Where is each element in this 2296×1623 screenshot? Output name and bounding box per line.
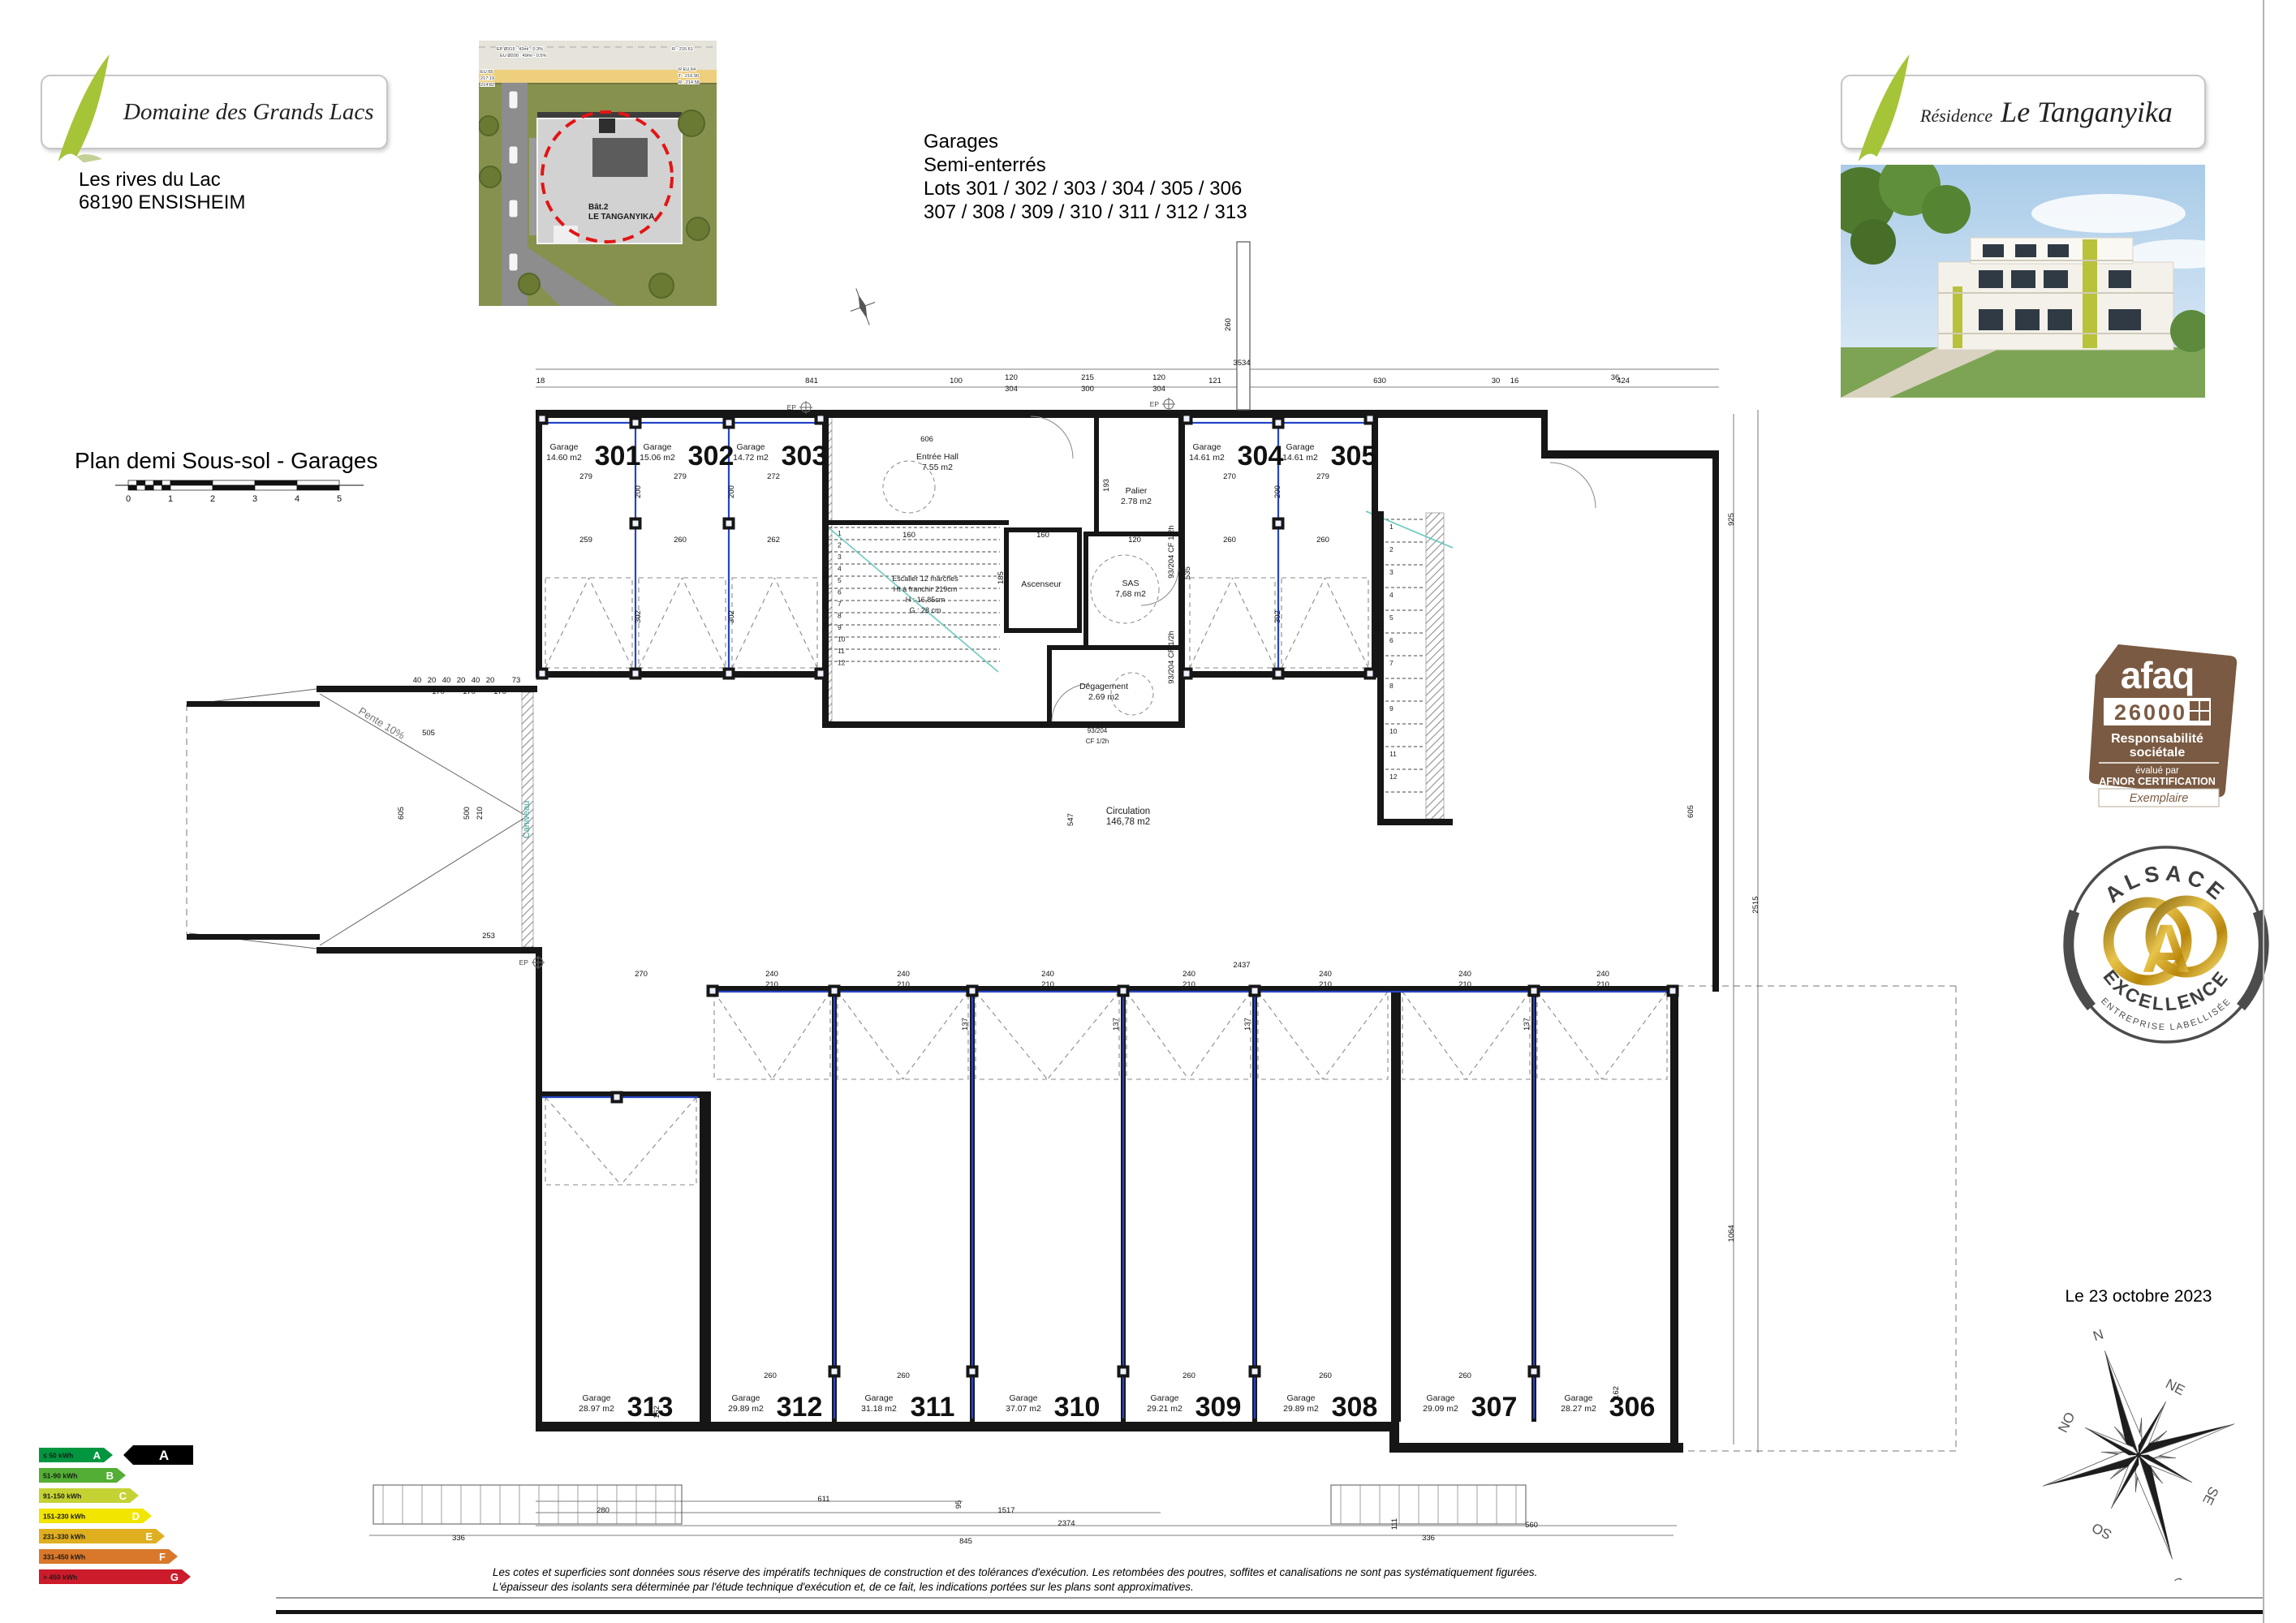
dimension-text: 841: [805, 377, 818, 385]
afaq-number: 26000: [2114, 700, 2187, 725]
dimension-text: 93/204 CF 1/2h: [1167, 631, 1176, 684]
vent-duct: [1237, 242, 1250, 410]
afaq-eval-1: évalué par: [2135, 766, 2179, 776]
dimension-text: 20: [457, 676, 466, 685]
rect: [545, 578, 632, 668]
stair-number: 2: [838, 541, 842, 549]
ep-label: EP: [1150, 400, 1160, 408]
plan-sheet: Domaine des Grands Lacs Les rives du Lac…: [0, 0, 2296, 1623]
dimension-text: 259: [579, 536, 592, 545]
afaq-tagline-2: sociétale: [2130, 746, 2186, 760]
dimension-text: 111: [1390, 1518, 1399, 1530]
site-note: R : 215.61: [672, 47, 693, 52]
dimension-text: 40: [413, 676, 422, 685]
dimension-text: 2374: [1058, 1519, 1075, 1528]
line: [545, 1097, 621, 1185]
line: [1537, 992, 1602, 1079]
garage-number: 312: [777, 1392, 823, 1423]
compass-direction-label: NO: [2055, 1410, 2078, 1435]
garage-number: 301: [595, 441, 641, 471]
plan-annotation: Caniveau: [522, 801, 532, 838]
dimension-text: 279: [674, 472, 687, 481]
site-note: R : 214.58: [678, 80, 700, 85]
scale-cell: [128, 480, 136, 485]
dimension-text: 272: [767, 472, 780, 481]
developer-logo-text: Domaine des Grands Lacs: [123, 99, 374, 126]
garage-number: 309: [1195, 1392, 1242, 1423]
stair-number: 9: [838, 623, 842, 631]
title-line-2: Semi-enterrés: [924, 153, 1247, 177]
dimension-text: 302: [727, 610, 736, 623]
stair-number: 3: [838, 553, 842, 561]
dimension-text: 845: [959, 1537, 972, 1546]
scale-cell: [153, 485, 162, 490]
plan-ramp-line: [320, 818, 524, 945]
dimension-text: 240: [1458, 970, 1471, 979]
room-label: Entrée Hall: [916, 452, 958, 462]
residence-logo-text: Résidence Le Tanganyika: [1920, 95, 2173, 129]
photo-cloud: [2031, 194, 2186, 233]
dimension-text: 137: [1243, 1018, 1252, 1031]
dimension-text: 240: [897, 970, 910, 979]
garage-name: Garage: [582, 1393, 610, 1403]
room-label: Ht à franchir 219cm: [894, 585, 958, 593]
site-tree: [678, 110, 704, 136]
plan-column-core: [633, 420, 639, 426]
stair-number: 7: [838, 600, 842, 608]
stair-number: 8: [1389, 682, 1394, 690]
line: [1323, 992, 1388, 1079]
dimension-text: 253: [482, 932, 495, 941]
rect: [838, 992, 968, 1079]
energy-range-label: > 450 kWh: [43, 1573, 77, 1582]
dimension-text: 335: [1373, 620, 1382, 633]
dimension-text: 137: [1523, 1018, 1531, 1031]
dimension-text: 1517: [997, 1506, 1014, 1515]
garage-area: 15.06 m2: [640, 453, 675, 463]
ep-label: EP: [519, 958, 529, 966]
stair-number: 12: [838, 659, 846, 667]
dimension-text: 240: [1041, 970, 1054, 979]
plan-column-core: [633, 521, 639, 527]
rect: [373, 1485, 682, 1524]
line: [621, 1097, 696, 1185]
dimension-text: 630: [1373, 377, 1386, 385]
dimension-text: 1064: [1727, 1225, 1736, 1242]
rect: [1190, 578, 1275, 668]
garage-name: Garage: [1150, 1393, 1178, 1403]
line: [714, 992, 773, 1079]
rect: [732, 578, 817, 668]
stair-number: 12: [1389, 773, 1398, 781]
compass-rose: NNEESESSOONO: [2033, 1321, 2244, 1581]
rect: [1402, 992, 1530, 1079]
plan-column-core: [1368, 416, 1373, 422]
rect: [545, 1097, 696, 1185]
scale-tick-label: 0: [126, 494, 131, 504]
dimension-text: 185: [997, 571, 1006, 584]
garage-door-swing: [545, 1097, 696, 1185]
stair-number: 2: [1389, 545, 1394, 553]
scale-cell: [145, 485, 153, 490]
dimension-text: 533: [821, 566, 830, 579]
stair-number: 6: [1389, 636, 1394, 644]
dimension-text: 137: [961, 1018, 970, 1031]
afaq-brand: afaq: [2121, 654, 2195, 696]
line: [1602, 992, 1667, 1079]
dimension-text: 160: [902, 531, 915, 540]
north-arrow-icon: [844, 284, 881, 329]
garage-name: Garage: [731, 1393, 760, 1403]
stair-number: 10: [1389, 727, 1398, 735]
scale-cell: [136, 485, 144, 490]
dimension-text: 304: [1152, 385, 1165, 394]
plan-wall: [1004, 628, 1082, 633]
dimension-text: 93/204 CF 1/2h: [1167, 525, 1176, 579]
room-label: Ascenseur: [1021, 579, 1062, 589]
dimension-text: 547: [1066, 813, 1075, 826]
garage-number: 303: [782, 441, 828, 471]
garage-area: 14.61 m2: [1282, 453, 1318, 463]
site-note: EP Ø315 : 43ml - 0.3%: [497, 47, 543, 52]
plan-column-core: [970, 988, 976, 994]
dimension-text: 40: [472, 676, 480, 685]
plan-column-core: [832, 988, 838, 994]
plan-column-core: [710, 988, 716, 994]
dimension-text: 336: [1422, 1534, 1435, 1543]
stair-number: 3: [1389, 568, 1394, 576]
garage-area: 14.60 m2: [546, 453, 582, 463]
disclaimer-line-2: L'épaisseur des isolants sera déterminée…: [493, 1580, 1759, 1595]
alsace-monogram: A: [2142, 911, 2191, 987]
sheet-right-border: [2263, 0, 2264, 1623]
address-line-1: Les rives du Lac: [79, 169, 245, 192]
stair-number: 6: [838, 588, 842, 596]
dimension-text: 260: [764, 1371, 777, 1380]
afaq-grade: Exemplaire: [2130, 792, 2189, 805]
rect: [1126, 992, 1251, 1079]
plan-column-core: [726, 420, 732, 426]
light-well: [1331, 1485, 1526, 1524]
garage-number: 310: [1054, 1392, 1101, 1423]
plan-column-core: [1276, 671, 1282, 677]
dimension-text: 40: [442, 676, 451, 685]
plan-wall: [822, 520, 1009, 525]
dimension-text: 606: [920, 435, 933, 444]
line: [775, 578, 818, 668]
dimension-text: 560: [1525, 1521, 1538, 1530]
energy-letter: A: [93, 1449, 101, 1462]
dimension-text: 2515: [1751, 896, 1760, 913]
dimension-text: 279: [579, 472, 592, 481]
rainwater-marker: EP: [1150, 398, 1175, 411]
dimension-text: 16: [1510, 377, 1519, 385]
dimension-text: 240: [1596, 970, 1609, 979]
dimension-text: 120: [1152, 373, 1165, 382]
dimension-text: 925: [1727, 513, 1736, 526]
afaq-tagline-1: Responsabilité: [2111, 732, 2203, 746]
room-label: Palier: [1126, 486, 1148, 496]
garage-area: 28.97 m2: [579, 1404, 614, 1414]
developer-logo: Domaine des Grands Lacs: [41, 75, 388, 149]
plan-column-core: [614, 1095, 620, 1100]
dimension-text: 605: [1686, 805, 1695, 818]
dimension-text: 240: [1182, 970, 1195, 979]
plan-column-core: [540, 671, 545, 677]
plan-wall: [536, 1091, 542, 1428]
energy-range-label: ≤ 50 kWh: [43, 1452, 73, 1460]
dimension-text: 200: [634, 485, 643, 498]
room-label: 7.55 m2: [922, 463, 953, 472]
plan-column-core: [1531, 988, 1537, 994]
dimension-text: 260: [897, 1371, 910, 1380]
rect: [639, 578, 726, 668]
plan-column-core: [832, 1369, 838, 1375]
dimension-text: 270: [1223, 472, 1236, 481]
scale-cell: [136, 480, 144, 485]
room-label: 2.69 m2: [1088, 692, 1119, 702]
line: [838, 992, 903, 1079]
afaq-certification-badge: afaq 26000 Responsabilité sociétale éval…: [2071, 639, 2243, 811]
plan-wall: [317, 947, 537, 954]
garage-number: 305: [1331, 441, 1377, 471]
dimension-text: 30: [1492, 377, 1501, 385]
plan-column-core: [818, 416, 824, 422]
garage-door-swing: [838, 992, 968, 1079]
residence-name: Le Tanganyika: [2001, 95, 2173, 129]
plan-column-core: [1252, 988, 1258, 994]
plan-column-core: [1276, 420, 1282, 426]
dimension-text: 611: [817, 1495, 829, 1504]
energy-range-label: 51-90 kWh: [43, 1472, 78, 1480]
garage-area: 29.89 m2: [728, 1404, 764, 1414]
footer-divider: [276, 1597, 2264, 1599]
dimension-text: 215: [1081, 373, 1094, 382]
dimension-text: 304: [1005, 385, 1018, 394]
dimension-text: 170: [463, 687, 476, 696]
energy-letter: F: [159, 1551, 166, 1563]
dimension-text: 160: [1036, 531, 1049, 540]
garage-number: 304: [1238, 441, 1284, 471]
garage-name: Garage: [736, 442, 765, 452]
dimension-text: 260: [1319, 1371, 1332, 1380]
garage-door-swing: [1190, 578, 1275, 668]
garage-door-swing: [1537, 992, 1667, 1079]
room-label: Escalier 12 marches: [892, 575, 958, 583]
plan-wall: [1391, 992, 1401, 1422]
garage-area: 14.61 m2: [1189, 453, 1225, 463]
afaq-eval-2: AFNOR CERTIFICATION: [2099, 776, 2216, 787]
dimension-text: 240: [765, 970, 778, 979]
dimension-text: 240: [1319, 970, 1332, 979]
garage-name: Garage: [1564, 1393, 1592, 1403]
garage-door-swing: [545, 578, 632, 668]
site-tree: [480, 166, 501, 187]
line: [1126, 992, 1189, 1079]
line: [1402, 992, 1467, 1079]
stair-number: 4: [1389, 591, 1394, 599]
room-label: 146,78 m2: [1106, 817, 1150, 827]
garage-name: Garage: [1192, 442, 1221, 452]
dimension-text: 18: [536, 377, 545, 385]
door-swing-arc: [1550, 463, 1596, 508]
stair-number: 11: [838, 647, 845, 655]
rect: [714, 992, 830, 1079]
plan-column-core: [633, 671, 639, 677]
dimension-text: 210: [765, 980, 778, 989]
plan-column-core: [726, 671, 732, 677]
dimension-text: 280: [597, 1506, 610, 1515]
logo-swoosh-icon: [1849, 47, 1919, 169]
dimension-text: 100: [950, 377, 963, 385]
stair-number: 10: [838, 635, 846, 644]
drawing-date: Le 23 octobre 2023: [2005, 1287, 2272, 1307]
plan-wall: [1083, 532, 1088, 645]
plan-column-core: [1368, 671, 1373, 677]
line: [976, 992, 1048, 1079]
garage-name: Garage: [864, 1393, 893, 1403]
compass-center: [2136, 1453, 2141, 1457]
energy-letter: C: [119, 1490, 127, 1502]
dimension-text: 20: [486, 676, 495, 685]
energy-letter: D: [132, 1510, 140, 1522]
garage-name: Garage: [1426, 1393, 1454, 1403]
energy-letter: E: [145, 1530, 153, 1543]
dimension-text: 162: [653, 1406, 661, 1419]
plan-wall: [187, 701, 320, 707]
plan-wall: [536, 947, 542, 1098]
room-label: G : 28 cm: [909, 606, 941, 614]
ep-label: EP: [787, 403, 797, 411]
swoosh-shape: [1858, 54, 1909, 161]
dimension-text: 137: [1112, 1018, 1121, 1031]
plan-wall: [536, 1422, 1398, 1431]
plan-wall: [536, 671, 828, 678]
dimension-text: 73: [512, 676, 521, 685]
dimension-text: 193: [1102, 479, 1111, 492]
line: [1048, 992, 1120, 1079]
garage-area: 28.27 m2: [1561, 1404, 1596, 1414]
garage-door-swing: [732, 578, 817, 668]
dimension-text: 210: [1319, 980, 1332, 989]
dimension-text: 262: [767, 536, 780, 545]
stair-number: 7: [1389, 659, 1394, 667]
line: [589, 578, 633, 668]
plan-column-core: [1252, 1369, 1258, 1375]
disclaimer-line-1: Les cotes et superficies sont données so…: [493, 1565, 1759, 1580]
garage-area: 37.07 m2: [1006, 1404, 1041, 1414]
dimension-text: 302: [634, 610, 643, 623]
line: [773, 992, 831, 1079]
dimension-text: 260: [1223, 536, 1236, 545]
plan-wall: [1047, 650, 1052, 721]
rect: [976, 992, 1119, 1079]
plan-wall: [1712, 454, 1719, 992]
line: [1258, 992, 1323, 1079]
garage-door-swing: [1258, 992, 1388, 1079]
line: [1190, 578, 1233, 668]
room-label: 7,68 m2: [1115, 589, 1146, 599]
compass-direction-label: SE: [2199, 1484, 2221, 1508]
dimension-text: 2437: [1233, 961, 1250, 970]
garage-door-swing: [1282, 578, 1368, 668]
garage-name: Garage: [549, 442, 578, 452]
site-note: T : 216.90: [678, 74, 699, 79]
dimension-text: 170: [432, 687, 445, 696]
energy-range-label: 231-330 kWh: [43, 1533, 85, 1541]
disclaimer: Les cotes et superficies sont données so…: [493, 1565, 1759, 1595]
energy-range-label: 331-450 kWh: [43, 1553, 85, 1561]
room-label: SAS: [1122, 579, 1139, 588]
site-note: R EU 64: [678, 67, 696, 72]
room-label: 2.78 m2: [1121, 497, 1152, 506]
swoosh-shape: [58, 54, 109, 161]
garage-number: 311: [911, 1392, 955, 1423]
site-note: 217.19: [480, 76, 494, 81]
compass-direction-label: NE: [2163, 1376, 2187, 1399]
rect: [1258, 992, 1388, 1079]
compass-direction-label: N: [2091, 1326, 2106, 1344]
garage-area: 29.89 m2: [1283, 1404, 1319, 1414]
room-label: Dégagement: [1079, 682, 1128, 691]
garage-door-swing: [1126, 992, 1251, 1079]
plan-column-core: [540, 416, 545, 422]
site-car: [509, 146, 518, 164]
garage-area: 29.21 m2: [1147, 1404, 1182, 1414]
dimension-text: 210: [476, 807, 485, 820]
alsace-excellence-badge: A ALSACE EXCELLENCE ENTREPRISE LABELLISÉ…: [2050, 837, 2282, 1058]
energy-letter: G: [170, 1571, 179, 1583]
dimension-text: 260: [1182, 1371, 1195, 1380]
site-note: 214.82: [480, 83, 494, 88]
garage-number: 307: [1471, 1392, 1518, 1423]
plan-hatched-wall: [1426, 513, 1444, 819]
plan-column-core: [1276, 521, 1282, 527]
plan-column-core: [1121, 988, 1126, 994]
plan-annotation: Pente 10%: [356, 704, 407, 742]
plan-wall: [1377, 819, 1453, 825]
garage-name: Garage: [1286, 1393, 1315, 1403]
garage-number: 302: [688, 441, 734, 471]
plan-column-core: [1121, 1369, 1126, 1375]
garage-area: 31.18 m2: [861, 1404, 897, 1414]
plan-wall: [1077, 527, 1082, 633]
dimension-text: 260: [1458, 1371, 1471, 1380]
dimension-text: 210: [1182, 980, 1195, 989]
energy-letter: B: [106, 1470, 114, 1482]
dimension-text: 200: [727, 485, 736, 498]
plan-column-core: [818, 671, 824, 677]
garage-door-swing: [639, 578, 726, 668]
dimension-text: 3534: [1233, 359, 1250, 368]
logo-swoosh-icon: [49, 47, 118, 169]
dimension-text: 210: [1041, 980, 1054, 989]
line: [683, 578, 726, 668]
dimension-text: 270: [635, 970, 648, 979]
dimension-text: 302: [1273, 610, 1282, 623]
dimension-text: 260: [674, 536, 687, 545]
residence-prefix: Résidence: [1920, 105, 1992, 127]
swoosh-shadow: [76, 154, 102, 162]
room-label: 93/204: [1088, 727, 1108, 734]
garage-number: 308: [1332, 1392, 1378, 1423]
light-well: [373, 1485, 682, 1524]
plan-wall: [822, 721, 1185, 728]
energy-range-label: 91-150 kWh: [43, 1492, 81, 1500]
energy-selected-letter: A: [159, 1448, 169, 1463]
garage-door-swing: [1402, 992, 1530, 1079]
line: [639, 578, 683, 668]
